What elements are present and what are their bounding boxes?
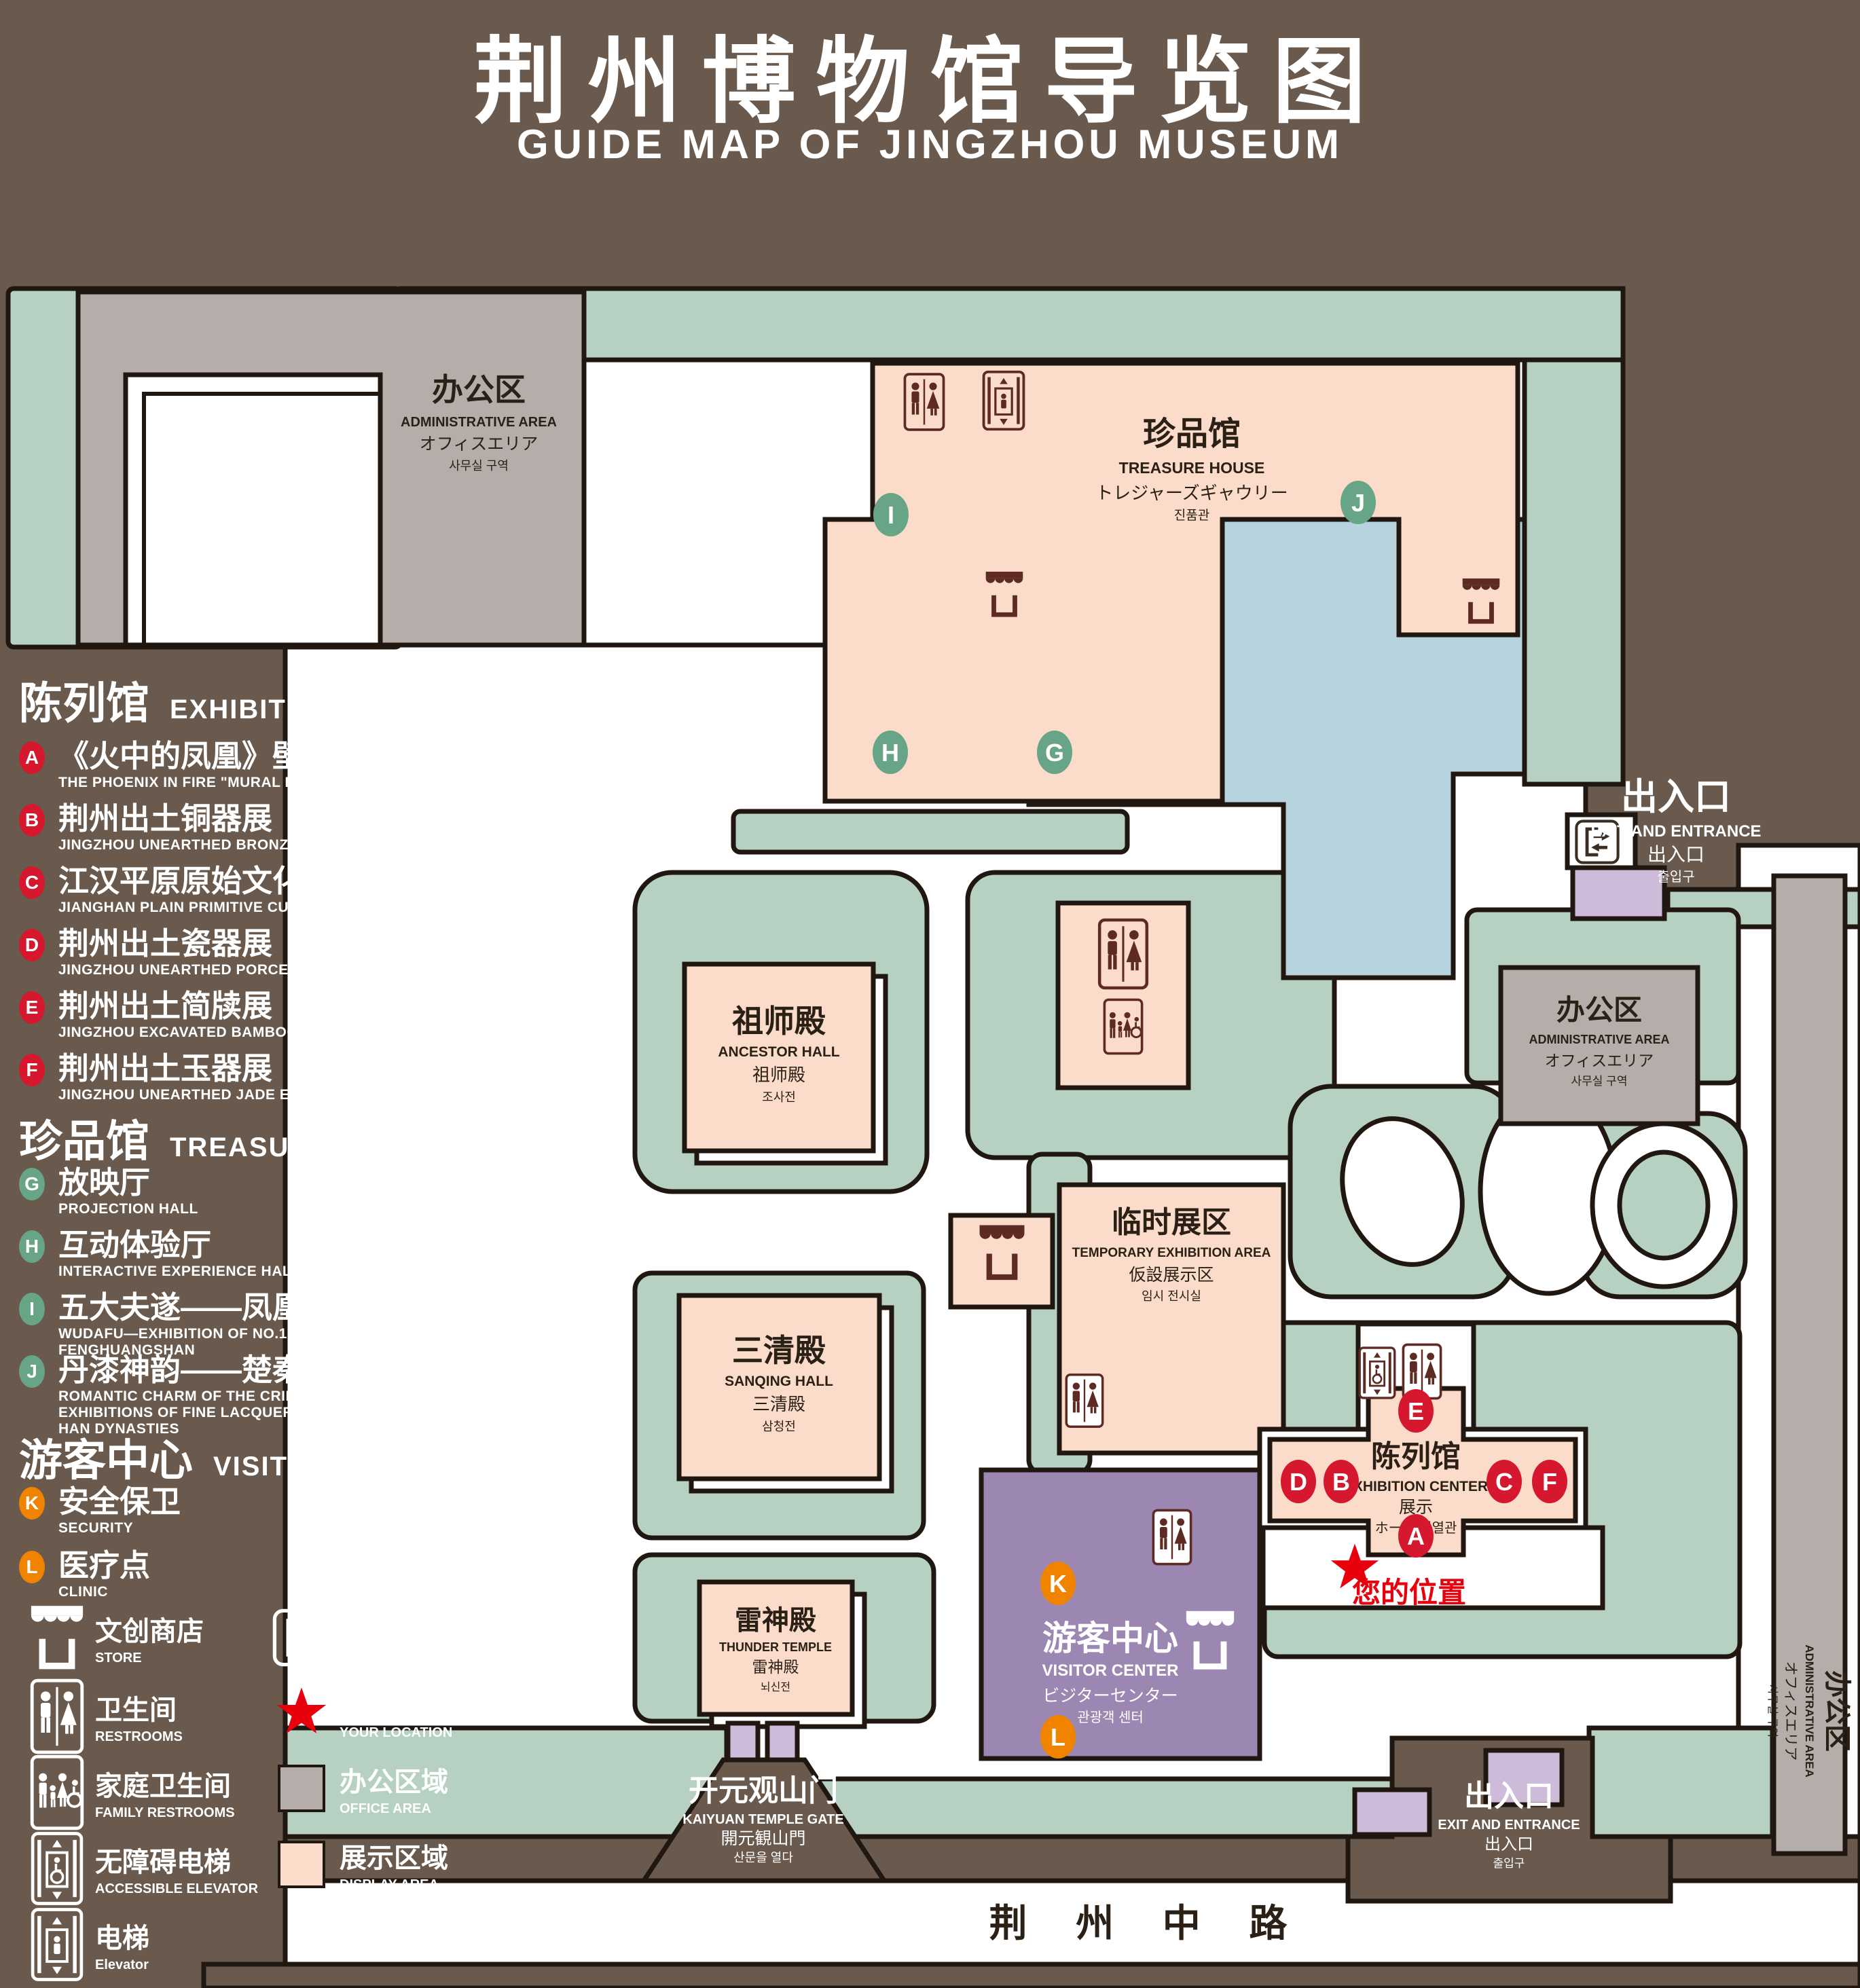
- elevator-icon: [984, 372, 1024, 429]
- svg-text:ANCESTOR HALL: ANCESTOR HALL: [718, 1044, 839, 1060]
- gate-pillar-left: [728, 1723, 758, 1760]
- map-marker-G: G: [1037, 731, 1072, 774]
- gate-pillar-right: [767, 1723, 797, 1760]
- legend-symbol-your-location: 您的位置YOUR LOCATION: [263, 1684, 452, 1741]
- exit-icon: [272, 1608, 331, 1668]
- svg-text:三清殿: 三清殿: [732, 1333, 826, 1368]
- legend-symbol-store: 文创商店STORE: [19, 1602, 204, 1673]
- your-location-icon: [276, 1687, 327, 1738]
- road-label: 荆 州 中 路: [989, 1902, 1307, 1945]
- legend-item-H: H 互动体验厅 INTERACTIVE EXPERIENCE HALL 1F: [19, 1229, 488, 1280]
- green-strip-under-treasure: [733, 811, 1127, 852]
- svg-text:出入口: 出入口: [1484, 1835, 1533, 1854]
- svg-text:조사전: 조사전: [762, 1090, 796, 1104]
- svg-text:EXIT AND ENTRANCE: EXIT AND ENTRANCE: [1590, 822, 1761, 841]
- marker-badge-I: I: [19, 1293, 45, 1325]
- legend-item-B: B 荆州出土铜器展 JINGZHOU UNEARTHED BRONZE WARE…: [19, 803, 488, 853]
- family-restrooms-icon: [29, 1754, 85, 1830]
- svg-text:祖师殿: 祖师殿: [752, 1065, 805, 1085]
- floor-label: 2F: [451, 990, 488, 1027]
- floor-label: 1F: [451, 1486, 488, 1522]
- svg-text:オフィスエリア: オフィスエリア: [420, 435, 539, 454]
- map-marker-H: H: [873, 731, 908, 774]
- svg-text:사무실 구역: 사무실 구역: [1571, 1075, 1628, 1088]
- legend-sidebar: 陈列馆 EXHIBITION CENTER A 《火中的凤凰》壁画 THE PH…: [19, 669, 488, 1986]
- svg-text:B: B: [1332, 1468, 1350, 1496]
- marker-badge-F: F: [19, 1054, 45, 1086]
- legend-item-G: G 放映厅 PROJECTION HALL 1F: [19, 1166, 488, 1217]
- svg-text:办公区: 办公区: [1822, 1670, 1852, 1752]
- svg-text:A: A: [1407, 1522, 1425, 1550]
- legend-item-L: L 医疗点 CLINIC 1F: [19, 1549, 488, 1600]
- svg-text:K: K: [1049, 1570, 1067, 1598]
- svg-text:진품관: 진품관: [1174, 508, 1209, 523]
- svg-text:仮設展示区: 仮設展示区: [1129, 1266, 1214, 1285]
- legend-section-visitor-center: 游客中心 VISITOR CENTER: [19, 1426, 460, 1488]
- admin-nw-courtyard: [126, 375, 380, 645]
- svg-text:ADMINISTRATIVE AREA: ADMINISTRATIVE AREA: [401, 415, 557, 430]
- svg-text:办公区: 办公区: [1556, 994, 1642, 1026]
- svg-text:出入口: 出入口: [1464, 1780, 1554, 1813]
- map-marker-C: C: [1487, 1460, 1522, 1503]
- legend-section-exhibition-center: 陈列馆 EXHIBITION CENTER: [19, 669, 467, 731]
- svg-text:出入口: 出入口: [1647, 844, 1704, 865]
- svg-text:사무실 구역: 사무실 구역: [1766, 1685, 1779, 1737]
- legend-symbol-accessible-elevator: 无障碍电梯ACCESSIBLE ELEVATOR: [19, 1830, 258, 1907]
- svg-text:开元观山门: 开元观山门: [689, 1774, 838, 1807]
- svg-text:J: J: [1351, 489, 1365, 517]
- legend-item-K: K 安全保卫 SECURITY 1F: [19, 1486, 488, 1536]
- svg-text:開元観山門: 開元観山門: [721, 1829, 805, 1848]
- map-marker-B: B: [1324, 1460, 1359, 1503]
- legend-item-A: A 《火中的凤凰》壁画 THE PHOENIX IN FIRE "MURAL P…: [19, 740, 488, 791]
- svg-text:临时展区: 临时展区: [1112, 1206, 1231, 1239]
- restroom-icon: [1153, 1510, 1190, 1564]
- svg-text:H: H: [881, 739, 899, 767]
- svg-text:EXIT AND ENTRANCE: EXIT AND ENTRANCE: [1438, 1818, 1580, 1833]
- map-marker-D: D: [1281, 1460, 1316, 1503]
- svg-text:TREASURE HOUSE: TREASURE HOUSE: [1119, 459, 1265, 477]
- svg-text:ADMINISTRATIVE AREA: ADMINISTRATIVE AREA: [1803, 1644, 1816, 1778]
- legend-item-I: I 五大夫遂——凤凰山168号汉墓展 WUDAFU—EXHIBITION OF …: [19, 1291, 488, 1359]
- your-location-label: 您的位置: [1352, 1577, 1466, 1608]
- svg-text:ビジターセンター: ビジターセンター: [1042, 1687, 1178, 1706]
- green-band-se: [1589, 1728, 1772, 1837]
- marker-badge-A: A: [19, 741, 45, 774]
- svg-text:F: F: [1542, 1468, 1557, 1496]
- svg-text:KAIYUAN TEMPLE GATE: KAIYUAN TEMPLE GATE: [682, 1812, 843, 1827]
- svg-text:산문을 열다: 산문을 열다: [733, 1851, 793, 1864]
- legend-item-F: F 荆州出土玉器展 JINGZHOU UNEARTHED JADE EXHIBI…: [19, 1052, 488, 1103]
- marker-badge-K: K: [19, 1487, 45, 1520]
- map-marker-I: I: [873, 493, 909, 536]
- svg-text:TEMPORARY EXHIBITION AREA: TEMPORARY EXHIBITION AREA: [1072, 1246, 1271, 1260]
- svg-text:三清殿: 三清殿: [752, 1394, 805, 1414]
- marker-badge-L: L: [19, 1551, 45, 1583]
- small-building-ne: [1573, 868, 1664, 919]
- svg-text:ADMINISTRATIVE AREA: ADMINISTRATIVE AREA: [1529, 1033, 1670, 1046]
- floor-label: 2F: [451, 1291, 488, 1328]
- svg-text:VISITOR CENTER: VISITOR CENTER: [1042, 1661, 1179, 1680]
- marker-badge-G: G: [19, 1168, 45, 1200]
- svg-text:C: C: [1495, 1468, 1513, 1496]
- marker-badge-B: B: [19, 804, 45, 836]
- svg-text:삼청전: 삼청전: [762, 1420, 796, 1433]
- accessible-elevator-icon: [31, 1830, 84, 1907]
- legend-item-D: D 荆州出土瓷器展 JINGZHOU UNEARTHED PORCELAIN E…: [19, 927, 488, 978]
- floor-label: 1F: [451, 740, 488, 777]
- accessible-elevator-icon: [1360, 1348, 1395, 1398]
- svg-text:D: D: [1290, 1468, 1307, 1496]
- elevator-icon: [31, 1907, 84, 1983]
- floor-label: 1F: [451, 803, 488, 839]
- legend-section-treasure-house: 珍品馆 TREASURE HOUSE: [19, 1107, 442, 1169]
- restrooms-icon: [30, 1678, 84, 1754]
- floor-label: 1F: [451, 1166, 488, 1203]
- legend-item-E: E 荆州出土简牍展 JINGZHOU EXCAVATED BAMBOO SLIP…: [19, 990, 488, 1041]
- svg-text:출입구: 출입구: [1493, 1857, 1525, 1870]
- restroom-icon: [1066, 1375, 1102, 1427]
- svg-text:사무실 구역: 사무실 구역: [449, 459, 509, 473]
- svg-text:展示: 展示: [1399, 1498, 1433, 1517]
- svg-text:뇌신전: 뇌신전: [761, 1681, 790, 1693]
- green-strip-right-of-pond: [1525, 360, 1623, 784]
- marker-badge-J: J: [19, 1355, 45, 1388]
- marker-badge-E: E: [19, 991, 45, 1024]
- svg-text:E: E: [1408, 1397, 1424, 1425]
- floor-label: 1F: [451, 865, 488, 902]
- svg-text:G: G: [1045, 739, 1064, 767]
- svg-text:トレジャーズギャウリー: トレジャーズギャウリー: [1095, 483, 1288, 503]
- store-icon: [26, 1602, 88, 1673]
- svg-text:陈列馆: 陈列馆: [1371, 1440, 1461, 1473]
- svg-text:출입구: 출입구: [1657, 869, 1694, 885]
- legend-symbol-elevator: 电梯Elevator: [19, 1907, 149, 1983]
- floor-label: 1-2F: [423, 1354, 488, 1391]
- legend-symbol-exit: 出入口EXIT AND ENTRANCE: [263, 1608, 481, 1668]
- svg-text:珍品馆: 珍品馆: [1143, 416, 1241, 452]
- legend-item-J: J 丹漆神韵——楚秦汉漆器精品展 ROMANTIC CHARM OF THE C…: [19, 1354, 488, 1437]
- floor-label: 2F: [451, 1052, 488, 1089]
- map-marker-F: F: [1532, 1460, 1567, 1503]
- display-area-swatch: [278, 1841, 325, 1888]
- garden-island-right: [1620, 1152, 1708, 1258]
- legend-symbol-display-area: 展示区域DISPLAY AREA: [263, 1836, 448, 1893]
- svg-text:관광객 센터: 관광객 센터: [1077, 1710, 1144, 1725]
- legend-symbol-restrooms: 卫生间RESTROOMS: [19, 1678, 183, 1754]
- svg-text:出入口: 出入口: [1621, 777, 1731, 817]
- legend-symbol-office-area: 办公区域OFFICE AREA: [263, 1760, 448, 1817]
- office-area-swatch: [278, 1765, 325, 1812]
- svg-text:オフィスエリア: オフィスエリア: [1783, 1661, 1798, 1761]
- svg-text:THUNDER TEMPLE: THUNDER TEMPLE: [719, 1640, 832, 1654]
- legend-symbol-family-restrooms: 家庭卫生间FAMILY RESTROOMS: [19, 1754, 235, 1830]
- svg-text:游客中心: 游客中心: [1042, 1619, 1178, 1657]
- marker-badge-C: C: [19, 866, 45, 899]
- legend-item-C: C 江汉平原原始文化展 JIANGHAN PLAIN PRIMITIVE CUL…: [19, 865, 488, 916]
- guide-map-poster: 荆州博物馆导览图 GUIDE MAP OF JINGZHOU MUSEUM: [0, 0, 1860, 1988]
- restroom-icon: [1403, 1344, 1440, 1398]
- map-marker-E: E: [1398, 1389, 1434, 1433]
- svg-text:雷神殿: 雷神殿: [735, 1606, 816, 1636]
- small-building-s1: [1355, 1790, 1429, 1835]
- floor-label: 2F: [451, 927, 488, 964]
- map-marker-A: A: [1398, 1514, 1434, 1558]
- svg-text:L: L: [1051, 1723, 1065, 1751]
- marker-badge-H: H: [19, 1230, 45, 1263]
- green-band-s: [801, 1779, 1392, 1837]
- svg-text:EXHIBITION CENTER: EXHIBITION CENTER: [1344, 1479, 1488, 1494]
- map-marker-K: K: [1040, 1562, 1076, 1605]
- svg-text:オフィスエリア: オフィスエリア: [1545, 1052, 1654, 1069]
- svg-text:SANQING HALL: SANQING HALL: [725, 1374, 833, 1389]
- svg-text:임시 전시실: 임시 전시실: [1142, 1289, 1201, 1303]
- svg-text:祖师殿: 祖师殿: [732, 1004, 826, 1039]
- floor-label: 1F: [451, 1229, 488, 1266]
- svg-text:雷神殿: 雷神殿: [752, 1658, 799, 1676]
- marker-badge-D: D: [19, 929, 45, 961]
- map-marker-J: J: [1341, 481, 1376, 524]
- floor-label: 1F: [451, 1549, 488, 1586]
- svg-text:I: I: [888, 501, 894, 529]
- map-marker-L: L: [1040, 1715, 1076, 1759]
- svg-text:办公区: 办公区: [432, 372, 526, 407]
